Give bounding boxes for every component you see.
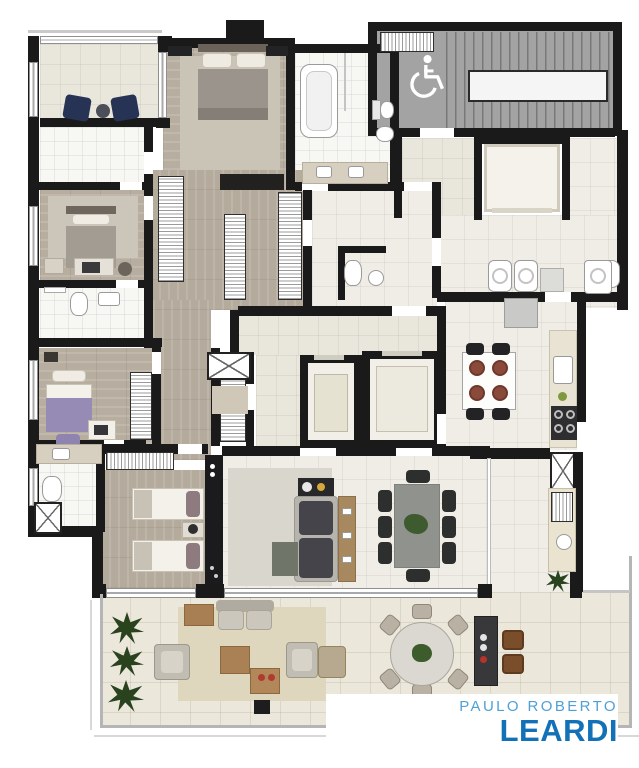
duct-shaft xyxy=(207,352,251,380)
brand-logo: PAULO ROBERTO LEARDI xyxy=(326,694,618,749)
sink xyxy=(52,448,70,460)
stair-closet xyxy=(380,32,434,52)
bar-sink xyxy=(556,534,572,550)
stool xyxy=(502,630,524,650)
deco-dot xyxy=(268,674,275,681)
sink xyxy=(316,166,332,178)
shower-screen xyxy=(344,53,346,111)
dining-chair xyxy=(406,569,430,582)
pillow xyxy=(236,53,266,68)
door-opening xyxy=(144,152,153,174)
wall xyxy=(562,136,570,220)
wall xyxy=(470,448,550,459)
speaker-dot xyxy=(210,464,215,469)
toilet xyxy=(380,101,394,119)
wall xyxy=(286,44,295,190)
washer-drum xyxy=(492,268,508,284)
door-opening xyxy=(152,352,161,374)
balcony-window xyxy=(40,36,158,44)
balcony-glass-top xyxy=(28,30,162,33)
elevator1-car xyxy=(314,374,348,432)
knob xyxy=(480,644,487,651)
laptop xyxy=(82,262,100,273)
cabinet xyxy=(540,268,564,292)
bed-runner xyxy=(134,542,152,570)
outdoor-armchair xyxy=(318,646,346,678)
door-opening xyxy=(404,182,432,191)
floor-plan: PAULO ROBERTO LEARDI xyxy=(0,0,639,768)
chair xyxy=(466,343,484,355)
lamp xyxy=(188,524,198,534)
sofa-cushion xyxy=(299,538,333,578)
wall xyxy=(40,118,158,127)
toilet xyxy=(42,476,62,502)
dining-chair xyxy=(406,470,430,483)
door-opening xyxy=(116,280,138,288)
elevator2-door xyxy=(382,351,422,356)
toilet xyxy=(70,292,88,316)
place-setting xyxy=(469,360,485,376)
bathroom2-floor xyxy=(40,286,144,338)
entry-mat xyxy=(212,386,248,414)
dresser xyxy=(220,174,284,190)
door-opening xyxy=(545,292,571,302)
bed-runner xyxy=(134,490,152,518)
armchair xyxy=(62,94,92,122)
shower xyxy=(34,502,62,534)
side-table xyxy=(272,542,298,576)
deco xyxy=(342,532,352,539)
armchair xyxy=(110,94,140,122)
armchair-cushion xyxy=(161,651,183,673)
sofa-cushion xyxy=(299,501,333,535)
elevator-lobby-floor xyxy=(256,355,302,447)
glass-partition xyxy=(487,458,491,588)
plant-pot xyxy=(558,392,567,401)
elevator1-door xyxy=(314,355,344,360)
grill-island xyxy=(474,616,498,686)
wardrobe xyxy=(130,372,152,440)
window xyxy=(158,52,167,118)
fridge xyxy=(504,298,538,328)
brand-line2: LEARDI xyxy=(338,717,618,745)
dining-chair xyxy=(378,516,392,538)
kitchen-sink xyxy=(553,356,573,384)
centerpiece xyxy=(412,644,432,662)
deco xyxy=(342,508,352,515)
door-opening xyxy=(437,414,446,444)
burner xyxy=(566,424,575,433)
stair-landing xyxy=(468,70,608,102)
deco-dot xyxy=(317,483,325,491)
floor-lamp xyxy=(254,700,270,714)
wall xyxy=(368,22,622,31)
wall xyxy=(613,22,622,136)
pillow xyxy=(52,370,86,382)
door-opening xyxy=(420,128,454,137)
door-opening xyxy=(303,220,312,246)
wall xyxy=(338,246,386,253)
foyer-floor xyxy=(238,315,438,355)
pillow xyxy=(186,491,200,517)
hallway-floor xyxy=(153,300,211,460)
bag xyxy=(44,352,58,362)
coffee-table xyxy=(250,668,280,694)
wall xyxy=(394,133,402,218)
railing-outer xyxy=(90,600,92,730)
outdoor-chair xyxy=(412,604,432,619)
bed-headboard xyxy=(66,206,116,214)
wall xyxy=(230,310,239,356)
pillow xyxy=(72,214,110,225)
speaker xyxy=(302,482,312,492)
window xyxy=(29,206,38,266)
chair xyxy=(492,343,510,355)
dining-chair xyxy=(442,490,456,512)
dining-chair xyxy=(378,542,392,564)
knob xyxy=(480,656,487,663)
deco-dot xyxy=(258,674,265,681)
side-table xyxy=(96,104,110,118)
outdoor-sofa-seat xyxy=(218,610,244,630)
bidet xyxy=(376,126,394,142)
dining-chair xyxy=(442,542,456,564)
place-setting xyxy=(492,385,508,401)
bed-headboard xyxy=(198,44,268,52)
nightstand xyxy=(168,46,192,56)
deco xyxy=(342,556,352,563)
burner xyxy=(554,410,563,419)
place-setting xyxy=(492,360,508,376)
outdoor-table xyxy=(184,604,214,626)
wall xyxy=(226,20,264,38)
washer-drum xyxy=(518,268,534,284)
door-opening xyxy=(120,182,142,190)
door-opening xyxy=(144,196,153,220)
bed-blanket xyxy=(198,108,268,120)
sink xyxy=(98,292,120,306)
wall xyxy=(92,584,106,598)
chair xyxy=(466,408,484,420)
wall xyxy=(196,584,224,598)
dining-chair xyxy=(442,516,456,538)
pillow xyxy=(186,543,200,569)
sink xyxy=(348,166,364,178)
wall xyxy=(156,118,170,128)
wardrobe xyxy=(106,452,174,470)
outdoor-sofa-seat xyxy=(246,610,272,630)
burner xyxy=(566,410,575,419)
terrace-door xyxy=(106,588,196,598)
door-opening xyxy=(432,238,441,266)
laundry-basin xyxy=(590,268,606,284)
burner xyxy=(554,424,563,433)
speaker-dot xyxy=(210,472,215,477)
chair xyxy=(492,408,510,420)
nightstand xyxy=(266,46,288,56)
breakfast-table xyxy=(462,352,516,410)
wheelchair-icon xyxy=(404,54,446,98)
railing xyxy=(583,590,630,593)
centerpiece xyxy=(404,514,428,534)
railing xyxy=(100,594,103,728)
door-opening xyxy=(577,422,586,448)
vanity xyxy=(302,162,388,184)
service-elevator-car xyxy=(484,144,560,212)
window xyxy=(29,360,38,420)
elevator2-car xyxy=(376,366,428,432)
grill xyxy=(551,492,573,522)
railing xyxy=(629,556,632,728)
pillow xyxy=(202,53,232,68)
wall xyxy=(474,136,570,144)
towel-rack xyxy=(44,287,66,293)
place-setting xyxy=(469,385,485,401)
wall xyxy=(303,190,312,308)
detail-dot xyxy=(214,574,218,578)
coffee-table xyxy=(220,646,250,674)
door-opening xyxy=(392,306,426,316)
nightstand xyxy=(44,258,64,274)
bathroom1-floor xyxy=(40,127,144,186)
purple-blanket xyxy=(46,398,92,432)
window xyxy=(29,468,38,506)
wall xyxy=(478,584,492,598)
dining-chair xyxy=(378,490,392,512)
service-elevator-door xyxy=(492,208,552,213)
detail-dot xyxy=(210,566,214,570)
pouf xyxy=(118,262,132,276)
wardrobe xyxy=(278,192,302,300)
laptop xyxy=(94,425,108,435)
terrace-sliding-door xyxy=(224,588,478,598)
wall xyxy=(28,338,162,347)
wardrobe xyxy=(158,176,184,282)
knob xyxy=(480,634,487,641)
wardrobe xyxy=(224,214,246,300)
wall xyxy=(474,136,482,220)
window xyxy=(29,62,38,117)
stool xyxy=(502,654,524,674)
door-opening xyxy=(178,444,202,454)
bathtub-basin xyxy=(306,71,332,131)
toilet xyxy=(344,260,362,286)
round-sink xyxy=(368,270,384,286)
armchair-cushion xyxy=(292,649,312,671)
